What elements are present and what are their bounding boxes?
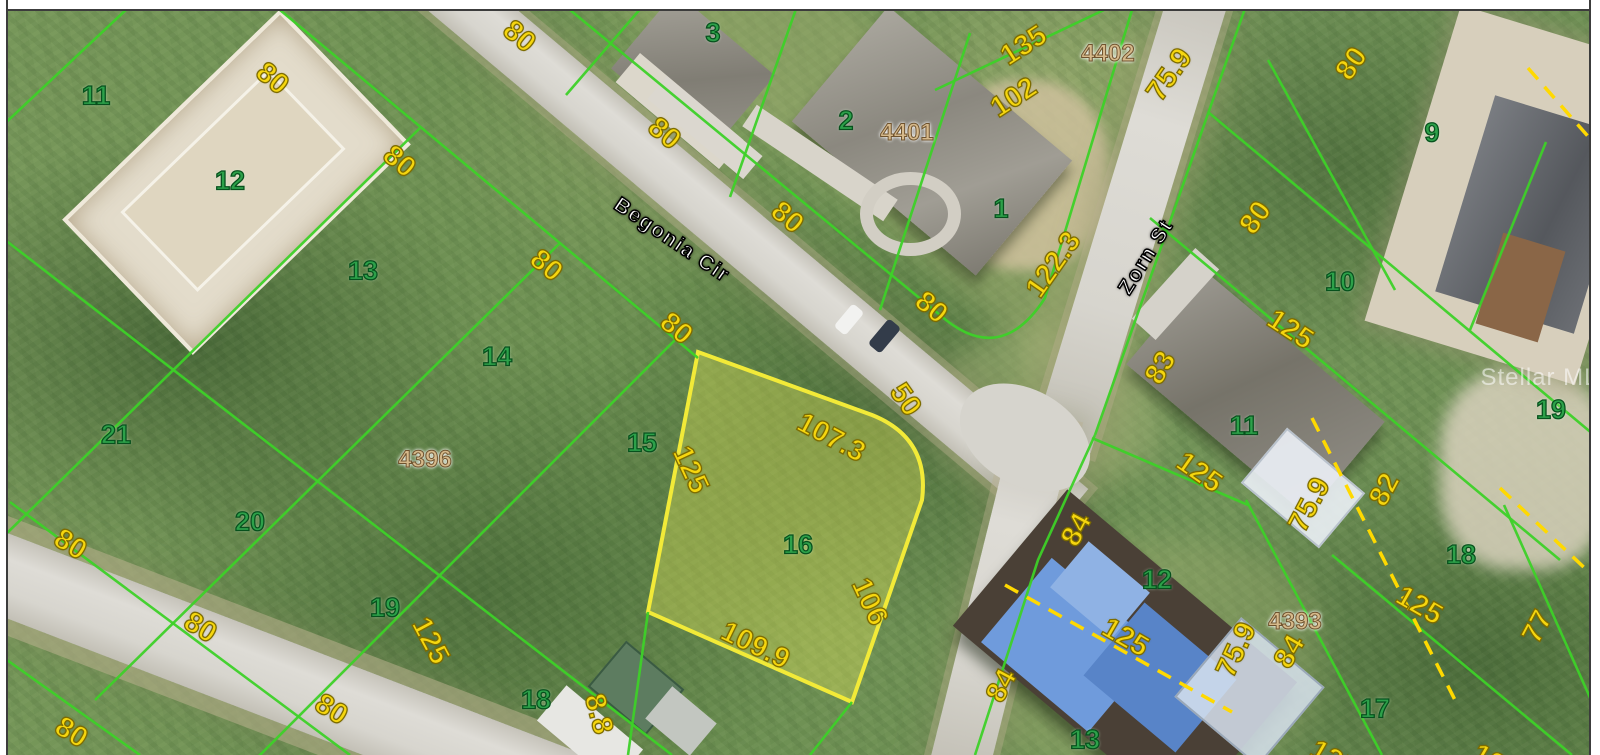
lot-number-label: 18 — [521, 687, 551, 714]
lot-number-label: 13 — [1070, 727, 1100, 754]
dimension-label: 107.3 — [792, 408, 870, 468]
lot-number-label: 2 — [838, 108, 853, 135]
dimension-label: 109.9 — [716, 617, 794, 675]
photo-frame-right — [1589, 0, 1600, 755]
dimension-label: 125 — [406, 613, 454, 669]
lot-number-label: 20 — [235, 509, 265, 536]
lot-number-label: 21 — [101, 422, 131, 449]
dimension-label: 77 — [1518, 606, 1559, 648]
driveway-loop-lot2 — [860, 172, 961, 256]
lot-number-label: 1 — [993, 196, 1008, 223]
lot-number-label: 12 — [215, 168, 245, 195]
photo-frame-top — [0, 0, 1600, 11]
dimension-label: 125 — [667, 442, 714, 498]
dimension-label: 125 — [1171, 447, 1227, 499]
lot-number-label: 9 — [1424, 120, 1439, 147]
dimension-label: 80 — [654, 308, 697, 351]
block-number-label: 4402 — [1081, 42, 1134, 66]
dimension-label: 80 — [50, 712, 93, 754]
dimension-label: 125 — [1391, 581, 1447, 630]
lot-number-label: 15 — [627, 430, 657, 457]
block-number-label: 4396 — [398, 448, 451, 472]
dimension-label: 80 — [1235, 196, 1277, 239]
block-number-label: 4393 — [1268, 610, 1321, 634]
lot-number-label: 3 — [705, 20, 720, 47]
lot-number-label: 19 — [370, 595, 400, 622]
dimension-label: 80 — [909, 287, 952, 330]
lot-number-label: 10 — [1325, 269, 1355, 296]
satellite-photo: 1112131415212019181632191011121319181780… — [0, 0, 1600, 755]
watermark: Stellar MLS — [1480, 366, 1600, 390]
dimension-label: 106 — [846, 574, 893, 630]
dimension-label: 125 — [1467, 739, 1523, 755]
parcel-boundary-line — [810, 702, 852, 755]
aerial-parcel-map: 1112131415212019181632191011121319181780… — [0, 0, 1600, 755]
lot-number-label: 13 — [348, 258, 378, 285]
lot-number-label: 14 — [482, 344, 512, 371]
lot-number-label: 17 — [1360, 696, 1390, 723]
lot-number-label: 12 — [1142, 567, 1172, 594]
lot-number-label: 18 — [1446, 542, 1476, 569]
dimension-label: 80 — [1331, 42, 1373, 85]
lot-number-label: 11 — [82, 83, 111, 110]
dimension-label: 135 — [996, 21, 1052, 72]
parcel-boundary-line — [1332, 555, 1572, 755]
dimension-label: 82 — [1365, 469, 1406, 511]
lot-number-label: 16 — [783, 532, 813, 559]
parcel-boundary-line — [1268, 60, 1395, 290]
dimension-label: 125 — [1305, 735, 1361, 755]
block-number-label: 4401 — [880, 121, 933, 145]
photo-frame-left — [0, 0, 8, 755]
lot-number-label: 19 — [1536, 397, 1566, 424]
lot-number-label: 11 — [1230, 413, 1259, 440]
dimension-label: 80 — [524, 245, 567, 288]
